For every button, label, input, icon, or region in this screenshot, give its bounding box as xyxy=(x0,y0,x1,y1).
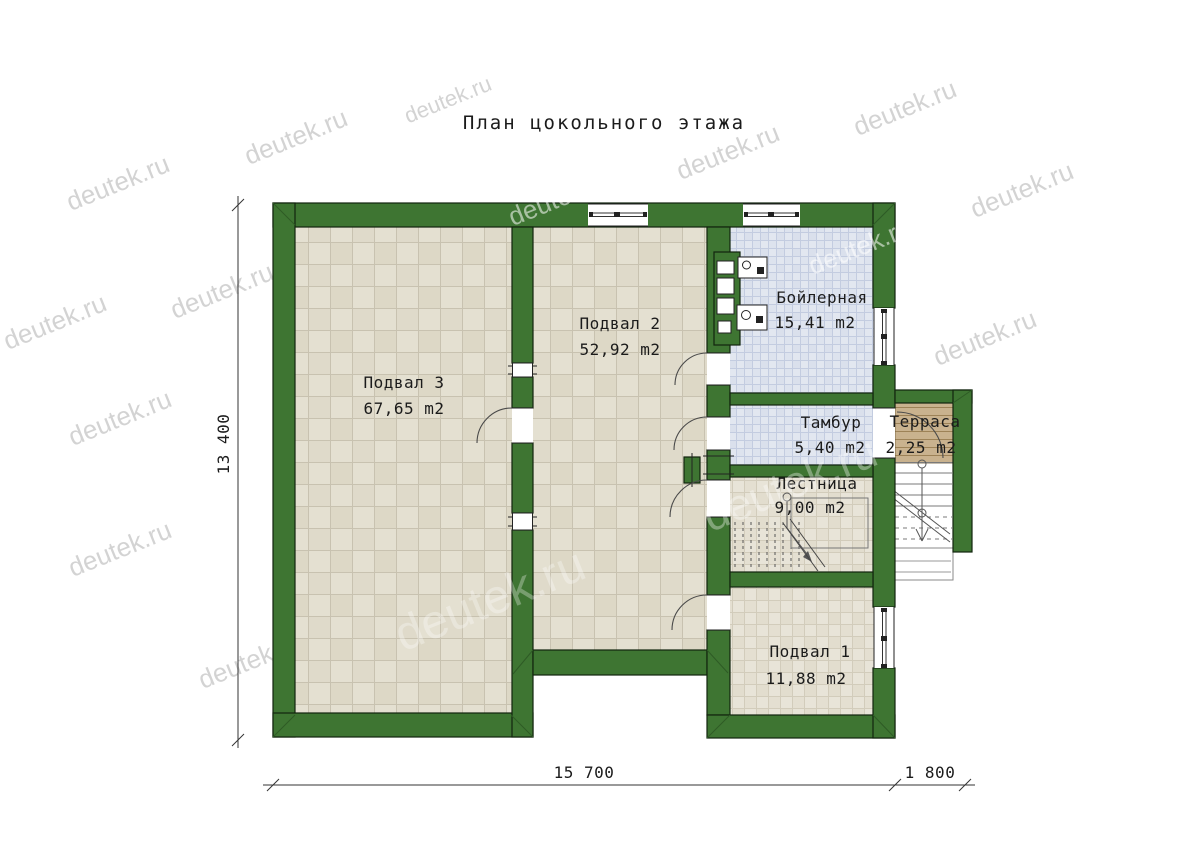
wall-left xyxy=(273,203,295,737)
wall-bottom-right xyxy=(707,715,895,738)
label-terrace-name: Терраса xyxy=(890,412,961,431)
wall-central xyxy=(707,385,730,417)
dimension-height-label: 13 400 xyxy=(214,414,233,475)
dimension-width-terrace-label: 1 800 xyxy=(905,763,956,782)
label-podval3-name: Подвал 3 xyxy=(363,373,444,392)
label-stairs-area: 9,00 m2 xyxy=(775,498,846,517)
label-tambur-area: 5,40 m2 xyxy=(795,438,866,457)
wall-top xyxy=(273,203,895,227)
label-podval2-name: Подвал 2 xyxy=(579,314,660,333)
wall-right xyxy=(873,458,895,607)
window-boiler-right xyxy=(874,308,894,365)
label-terrace-area: 2,25 m2 xyxy=(886,438,957,457)
wall-divider-p3p2 xyxy=(512,530,533,737)
wall-divider-p3p2 xyxy=(512,443,533,513)
label-boiler-name: Бойлерная xyxy=(776,288,867,307)
wall-divider-p3p2 xyxy=(512,227,533,363)
wall-podval2-bottom xyxy=(533,650,707,675)
label-podval2-area: 52,92 m2 xyxy=(579,340,660,359)
label-podval3-area: 67,65 m2 xyxy=(363,399,444,418)
window-podval1-right xyxy=(874,607,894,668)
wall-right xyxy=(873,365,895,408)
wall-central xyxy=(707,630,730,715)
floor-podval3 xyxy=(293,225,514,715)
boiler-unit xyxy=(738,257,767,278)
terrace-stair-direction xyxy=(893,460,950,542)
dimension-bottom xyxy=(263,779,975,791)
window-boiler-top xyxy=(743,204,800,226)
label-stairs-name: Лестница xyxy=(776,474,857,493)
wall-bottom-left xyxy=(273,713,533,737)
dimension-width-main-label: 15 700 xyxy=(554,763,615,782)
floor-podval2 xyxy=(531,225,709,652)
label-podval1-area: 11,88 m2 xyxy=(765,669,846,688)
label-tambur-name: Тамбур xyxy=(801,413,862,432)
dimension-left xyxy=(232,196,244,748)
wall-right xyxy=(873,668,895,738)
wall-central xyxy=(707,450,730,480)
chimney-block xyxy=(714,252,740,345)
wall-right xyxy=(873,203,895,308)
vent-shaft xyxy=(508,363,537,377)
wall-divider-p3p2 xyxy=(512,377,533,408)
label-podval1-name: Подвал 1 xyxy=(769,642,850,661)
window-podval2-top xyxy=(588,204,648,226)
label-boiler-area: 15,41 m2 xyxy=(774,313,855,332)
vent-shaft xyxy=(508,513,537,530)
terrace-exterior-stairs xyxy=(893,460,953,580)
floor-plan-page: План цокольного этажа deutek.ru deutek.r… xyxy=(0,0,1200,847)
wall-stairs-podval1 xyxy=(730,572,873,587)
wall-central xyxy=(707,517,730,595)
floor-plan-drawing: Подвал 3 67,65 m2 Подвал 2 52,92 m2 Бойл… xyxy=(0,0,1200,847)
boiler-unit xyxy=(737,305,767,330)
wall-boiler-tambur xyxy=(730,393,873,405)
